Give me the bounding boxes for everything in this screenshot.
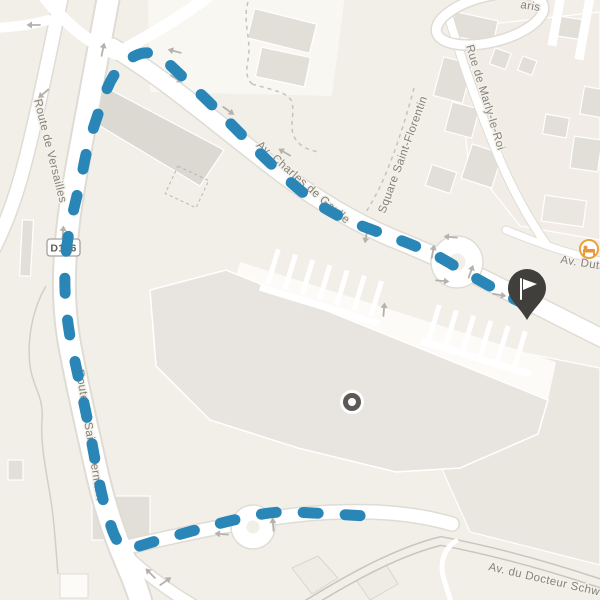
map-svg: Route de Versailles Route de Saint-Germa… bbox=[0, 0, 600, 600]
map-canvas[interactable]: Route de Versailles Route de Saint-Germa… bbox=[0, 0, 600, 600]
building bbox=[20, 220, 34, 276]
dot-icon-center bbox=[348, 398, 356, 406]
building bbox=[8, 460, 23, 480]
parcel bbox=[60, 574, 88, 598]
building bbox=[570, 136, 600, 172]
building bbox=[541, 195, 586, 227]
building bbox=[542, 114, 569, 138]
waypoint-marker[interactable] bbox=[342, 392, 363, 413]
hotel-poi[interactable] bbox=[580, 240, 598, 258]
